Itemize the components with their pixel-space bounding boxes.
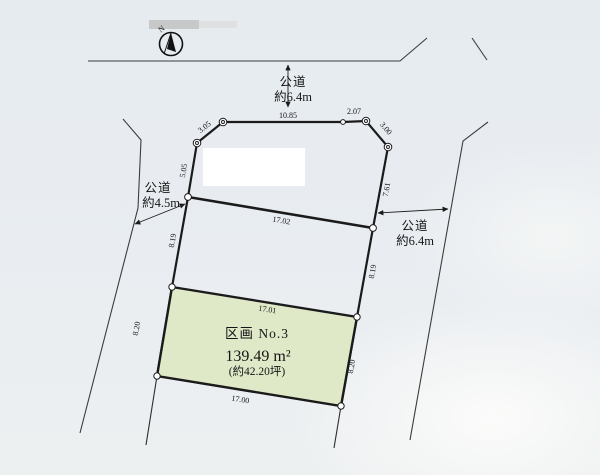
dim-west-upper: 5.05 bbox=[178, 163, 189, 178]
west-road-west-edge bbox=[80, 119, 141, 433]
dim-parcel-west: 8.20 bbox=[131, 321, 142, 336]
survey-marker bbox=[154, 373, 160, 379]
parcel-area-sqm: 139.49 m² bbox=[225, 348, 290, 365]
survey-marker bbox=[384, 143, 392, 151]
survey-marker bbox=[354, 314, 360, 320]
northeast-intersection-corner bbox=[472, 38, 487, 60]
survey-marker bbox=[341, 120, 346, 125]
west-road-width: 約4.5m bbox=[142, 195, 180, 210]
west-road-name: 公道 bbox=[144, 181, 171, 195]
survey-marker bbox=[362, 117, 370, 125]
east-boundary-extension bbox=[334, 406, 341, 448]
east-road-west-edge bbox=[410, 122, 488, 440]
dim-northeast-corner: 3.00 bbox=[378, 120, 394, 137]
dim-middle-east: 8.19 bbox=[367, 264, 378, 279]
survey-marker bbox=[185, 194, 192, 201]
east-road-width: 約6.4m bbox=[396, 233, 434, 248]
north-road-name: 公道 bbox=[279, 75, 306, 89]
east-road-name: 公道 bbox=[401, 219, 428, 233]
dim-parcel-east: 8.20 bbox=[346, 359, 357, 374]
scan-smudge-light bbox=[199, 21, 237, 28]
plot-plan-page: N bbox=[0, 0, 600, 475]
dim-parcel-south: 17.00 bbox=[231, 394, 250, 406]
land-plot-diagram: N bbox=[0, 0, 600, 475]
dim-north-edge: 10.85 bbox=[279, 111, 297, 120]
parcel-no3 bbox=[157, 287, 357, 406]
masked-area bbox=[203, 148, 305, 186]
north-road-width: 約6.4m bbox=[274, 89, 312, 104]
dim-east-upper: 7.61 bbox=[381, 182, 392, 197]
survey-marker bbox=[338, 403, 344, 409]
dim-north-edge-east: 2.07 bbox=[347, 107, 361, 116]
survey-marker bbox=[219, 118, 227, 126]
dim-upper-section-south: 17.02 bbox=[272, 215, 291, 227]
parcel-title: 区画 No.3 bbox=[225, 326, 289, 341]
north-road-south-edge bbox=[88, 38, 427, 61]
parcel-area-tsubo: (約42.20坪) bbox=[229, 364, 286, 378]
parcel-labels: 区画 No.3 139.49 m² (約42.20坪) bbox=[225, 326, 291, 378]
survey-marker bbox=[193, 139, 201, 147]
survey-marker bbox=[169, 284, 175, 290]
west-boundary-extension bbox=[146, 376, 157, 445]
survey-marker bbox=[370, 225, 377, 232]
dim-middle-west: 8.19 bbox=[167, 233, 178, 248]
east-road-width-arrow bbox=[378, 209, 448, 213]
